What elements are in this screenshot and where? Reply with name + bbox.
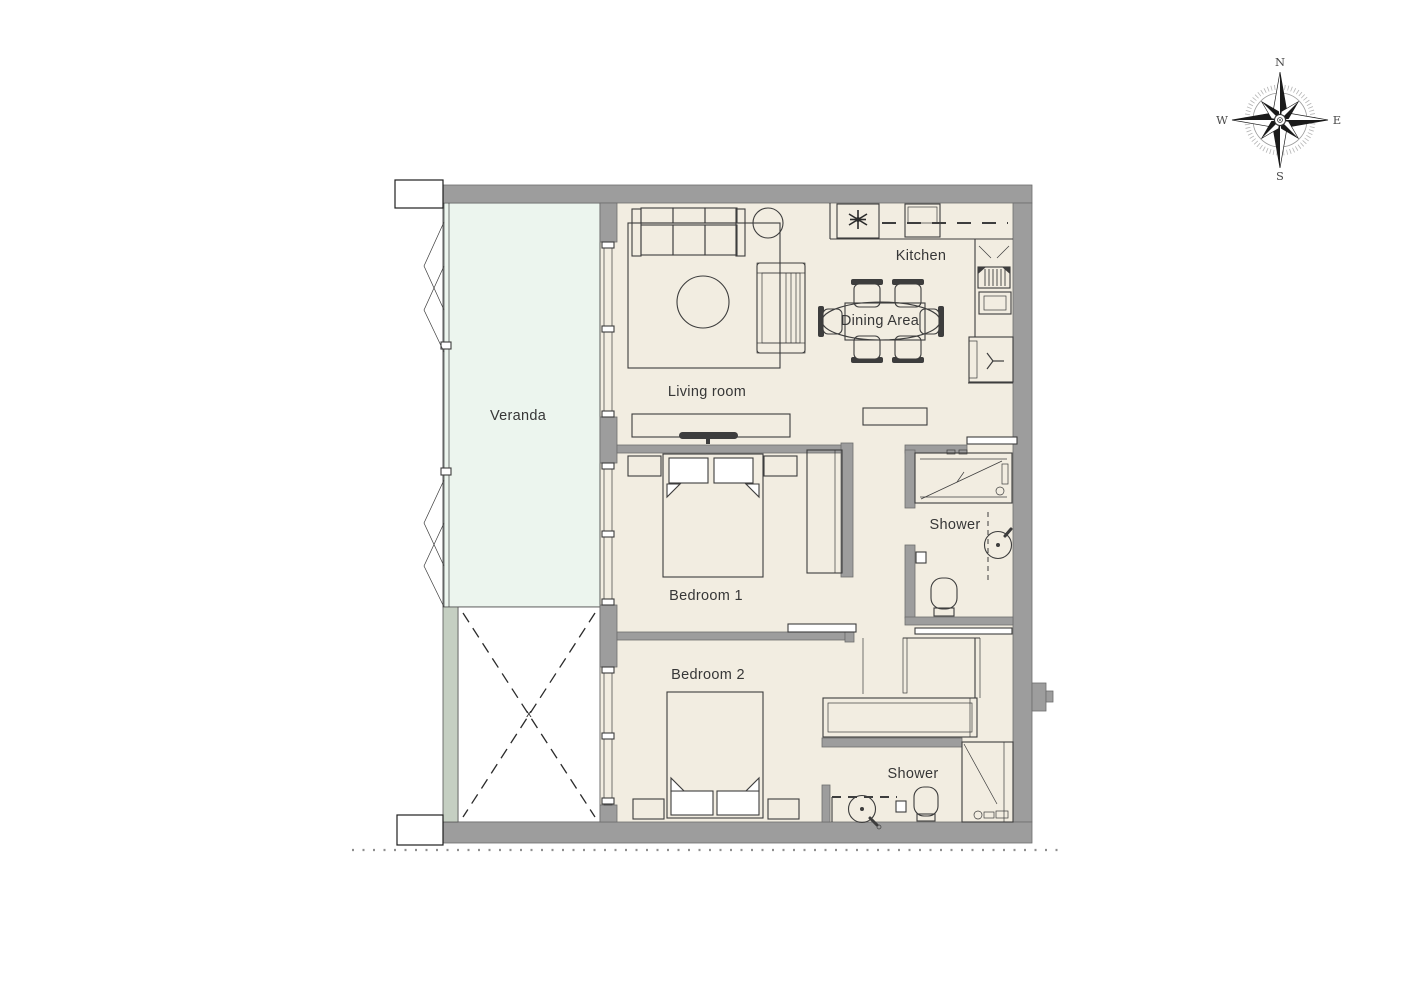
folding-shutters <box>424 222 444 607</box>
room-label-veranda: Veranda <box>490 408 546 424</box>
exterior-boxes <box>395 180 443 845</box>
pocket-door <box>788 624 856 632</box>
room-label-kitchen: Kitchen <box>896 248 946 264</box>
room-label-bedroom-1: Bedroom 1 <box>669 588 743 604</box>
room-label-shower-1: Shower <box>930 517 981 533</box>
compass-rose-icon <box>1232 72 1328 168</box>
room-label-shower-2: Shower <box>888 766 939 782</box>
floor-plan-drawing <box>0 0 1401 990</box>
room-label-dining-area: Dining Area <box>841 313 919 329</box>
room-label-living-room: Living room <box>668 384 746 400</box>
room-label-bedroom-2: Bedroom 2 <box>671 667 745 683</box>
column <box>443 607 458 822</box>
compass-label-north: N <box>1275 55 1285 69</box>
sliding-door <box>967 437 1017 444</box>
compass-label-south: S <box>1276 169 1284 183</box>
void-x-marker: x <box>526 708 532 720</box>
door-handle <box>916 552 926 563</box>
compass-label-east: E <box>1333 113 1341 127</box>
floor-plan-canvas: Veranda Living room Kitchen Dining Area … <box>0 0 1401 990</box>
compass-label-west: W <box>1216 113 1228 127</box>
shelf <box>915 628 1012 634</box>
